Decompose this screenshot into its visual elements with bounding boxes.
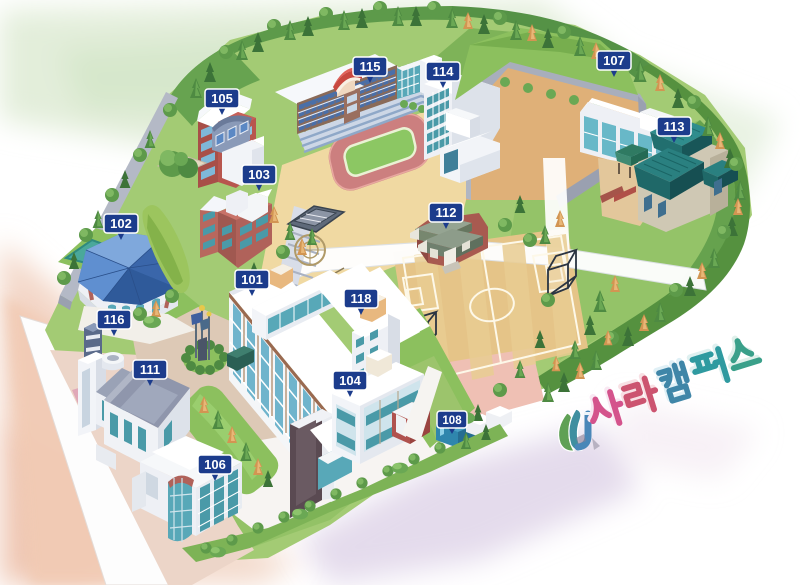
svg-text:106: 106 <box>204 457 226 472</box>
svg-text:108: 108 <box>442 415 462 427</box>
svg-text:105: 105 <box>211 91 233 106</box>
svg-text:115: 115 <box>360 59 381 74</box>
svg-text:101: 101 <box>241 272 263 287</box>
svg-text:112: 112 <box>436 205 457 220</box>
svg-text:114: 114 <box>433 64 455 79</box>
svg-text:113: 113 <box>664 119 685 134</box>
svg-text:118: 118 <box>351 291 372 306</box>
svg-text:107: 107 <box>603 53 625 68</box>
svg-text:103: 103 <box>248 167 270 182</box>
svg-text:102: 102 <box>110 216 132 231</box>
svg-text:116: 116 <box>104 312 125 327</box>
svg-text:104: 104 <box>339 373 361 388</box>
svg-text:111: 111 <box>140 362 160 377</box>
